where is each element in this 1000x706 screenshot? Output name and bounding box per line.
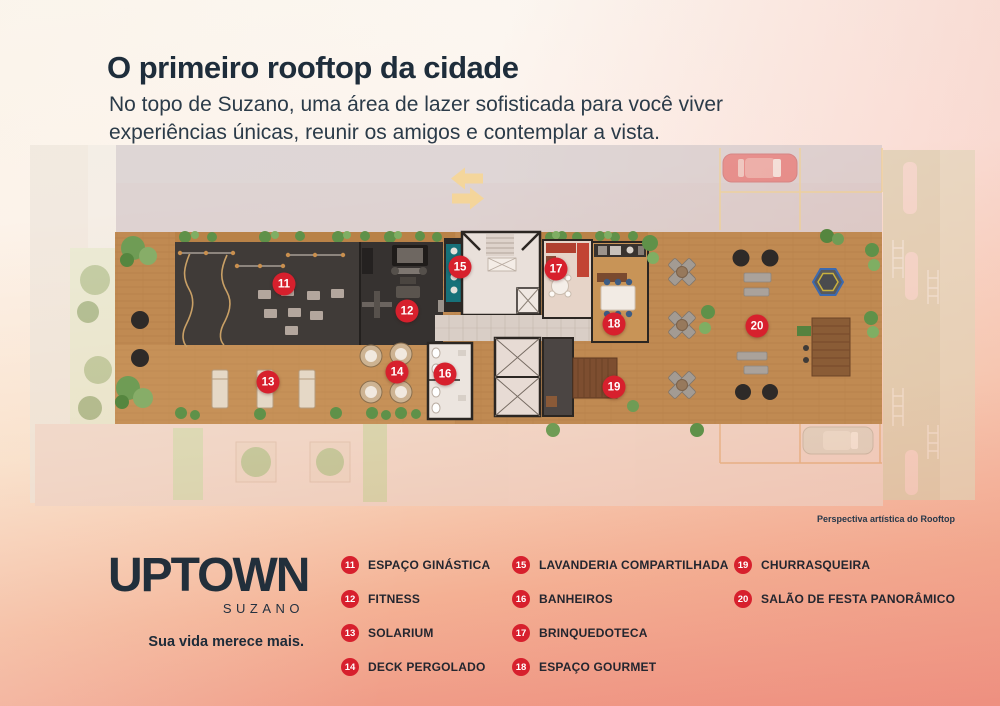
legend-label-14: DECK PERGOLADO <box>368 660 485 674</box>
legend-label-13: SOLARIUM <box>368 626 434 640</box>
legend-badge-11: 11 <box>341 556 359 574</box>
legend-item-15: 15 LAVANDERIA COMPARTILHADA <box>512 548 729 582</box>
legend-column-1: 11 ESPAÇO GINÁSTICA 12 FITNESS 13 SOLARI… <box>341 548 490 684</box>
legend-label-19: CHURRASQUEIRA <box>761 558 870 572</box>
legend-label-17: BRINQUEDOTECA <box>539 626 648 640</box>
legend-badge-15: 15 <box>512 556 530 574</box>
floorplan-graphic <box>0 140 1000 512</box>
legend-item-19: 19 CHURRASQUEIRA <box>734 548 955 582</box>
legend-item-17: 17 BRINQUEDOTECA <box>512 616 729 650</box>
plan-marker-19: 19 <box>603 376 626 399</box>
plan-marker-14: 14 <box>386 361 409 384</box>
legend-item-20: 20 SALÃO DE FESTA PANORÂMICO <box>734 582 955 616</box>
plan-marker-13: 13 <box>257 371 280 394</box>
legend-item-16: 16 BANHEIROS <box>512 582 729 616</box>
elevators <box>495 338 540 416</box>
legend-label-16: BANHEIROS <box>539 592 613 606</box>
legend-item-13: 13 SOLARIUM <box>341 616 490 650</box>
legend-badge-20: 20 <box>734 590 752 608</box>
plan-marker-18: 18 <box>603 313 626 336</box>
trampoline <box>813 269 843 295</box>
sidewalk-bottom <box>35 424 883 506</box>
rooftop-floorplan: 11121314151617181920 <box>0 140 1000 512</box>
plan-marker-16: 16 <box>434 363 457 386</box>
legend-column-2: 15 LAVANDERIA COMPARTILHADA 16 BANHEIROS… <box>512 548 729 684</box>
legend-badge-16: 16 <box>512 590 530 608</box>
brand-logo: UPTOWN SUZANO Sua vida merece mais. <box>108 552 304 650</box>
plan-marker-17: 17 <box>545 258 568 281</box>
logo-suzano: SUZANO <box>108 601 304 616</box>
legend-label-20: SALÃO DE FESTA PANORÂMICO <box>761 592 955 606</box>
legend-label-18: ESPAÇO GOURMET <box>539 660 656 674</box>
legend-badge-17: 17 <box>512 624 530 642</box>
plan-marker-12: 12 <box>396 300 419 323</box>
rooftop-slab <box>115 229 882 437</box>
legend-item-12: 12 FITNESS <box>341 582 490 616</box>
legend-item-18: 18 ESPAÇO GOURMET <box>512 650 729 684</box>
legend-label-11: ESPAÇO GINÁSTICA <box>368 558 490 572</box>
legend-badge-18: 18 <box>512 658 530 676</box>
legend-label-15: LAVANDERIA COMPARTILHADA <box>539 558 729 572</box>
legend-column-3: 19 CHURRASQUEIRA 20 SALÃO DE FESTA PANOR… <box>734 548 955 616</box>
beige-car <box>803 427 873 454</box>
legend-badge-14: 14 <box>341 658 359 676</box>
plan-caption: Perspectiva artística do Rooftop <box>700 514 955 524</box>
page-title: O primeiro rooftop da cidade <box>107 50 518 86</box>
logo-uptown: UPTOWN <box>108 552 304 600</box>
subtitle-line-1: No topo de Suzano, uma área de lazer sof… <box>109 91 723 119</box>
legend-badge-19: 19 <box>734 556 752 574</box>
utility-room <box>543 338 573 416</box>
brand-tagline: Sua vida merece mais. <box>108 634 304 650</box>
plan-marker-20: 20 <box>746 315 769 338</box>
gym-area <box>175 242 360 347</box>
legend-item-14: 14 DECK PERGOLADO <box>341 650 490 684</box>
legend-badge-13: 13 <box>341 624 359 642</box>
stair-core <box>462 232 540 315</box>
plan-marker-11: 11 <box>273 273 296 296</box>
page-subtitle: No topo de Suzano, uma área de lazer sof… <box>109 91 723 147</box>
legend-label-12: FITNESS <box>368 592 420 606</box>
red-car <box>723 154 797 182</box>
legend-badge-12: 12 <box>341 590 359 608</box>
neighbor-building-right <box>883 150 975 500</box>
legend-item-11: 11 ESPAÇO GINÁSTICA <box>341 548 490 582</box>
plan-marker-15: 15 <box>449 256 472 279</box>
